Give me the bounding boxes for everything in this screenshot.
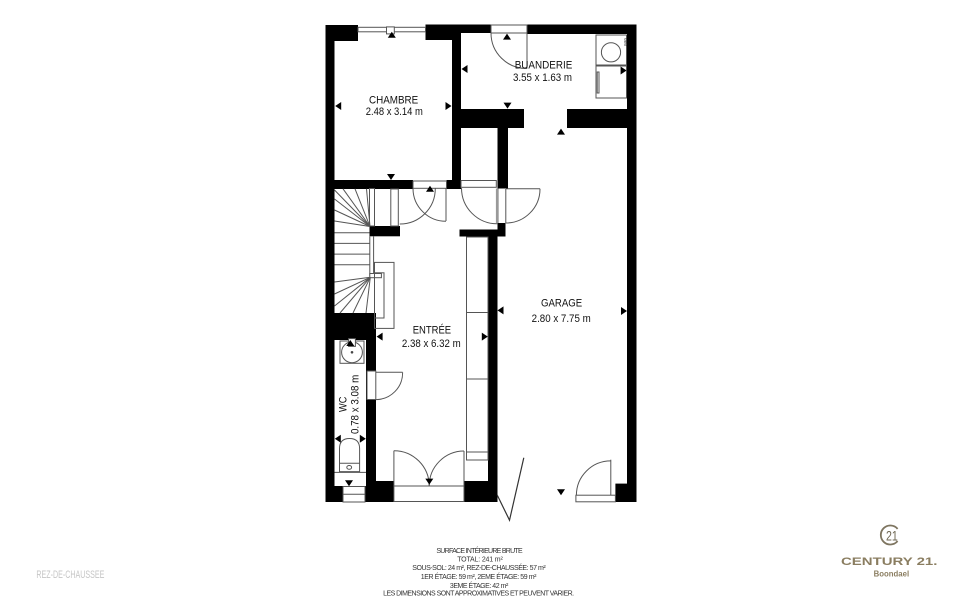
svg-text:Boondael: Boondael [874,570,910,579]
svg-text:TOTAL: 241 m²: TOTAL: 241 m² [457,557,503,564]
svg-text:1ER ÉTAGE: 59 m², 2EME ÉTAGE:: 1ER ÉTAGE: 59 m², 2EME ÉTAGE: 59 m² [421,572,537,581]
svg-text:2.80 x 7.75 m: 2.80 x 7.75 m [532,313,591,325]
svg-text:SOUS-SOL: 24 m², REZ-DE-CHAUSS: SOUS-SOL: 24 m², REZ-DE-CHAUSSÉE: 57 m² [412,563,546,572]
svg-text:BUANDERIE: BUANDERIE [515,59,573,71]
svg-text:2.48 x 3.14 m: 2.48 x 3.14 m [366,106,423,118]
svg-text:REZ-DE-CHAUSSEE: REZ-DE-CHAUSSEE [36,569,104,581]
svg-text:ENTRÉE: ENTRÉE [413,324,451,337]
svg-text:WM: WM [623,38,628,46]
svg-text:3.55 x 1.63 m: 3.55 x 1.63 m [513,72,572,84]
svg-text:GARAGE: GARAGE [541,297,582,309]
svg-text:21: 21 [886,528,898,544]
svg-text:3EME ÉTAGE: 42 m²: 3EME ÉTAGE: 42 m² [450,581,509,590]
svg-text:LES DIMENSIONS SONT APPROXIMAT: LES DIMENSIONS SONT APPROXIMATIVES ET PE… [383,590,574,597]
svg-text:CENTURY 21.: CENTURY 21. [841,556,937,568]
svg-text:2.38 x 6.32 m: 2.38 x 6.32 m [402,338,461,350]
svg-text:WC: WC [338,397,350,412]
svg-text:0.78 x 3.08 m: 0.78 x 3.08 m [350,375,362,434]
svg-text:SURFACE INTÉRIEURE BRUTE: SURFACE INTÉRIEURE BRUTE [436,546,523,555]
